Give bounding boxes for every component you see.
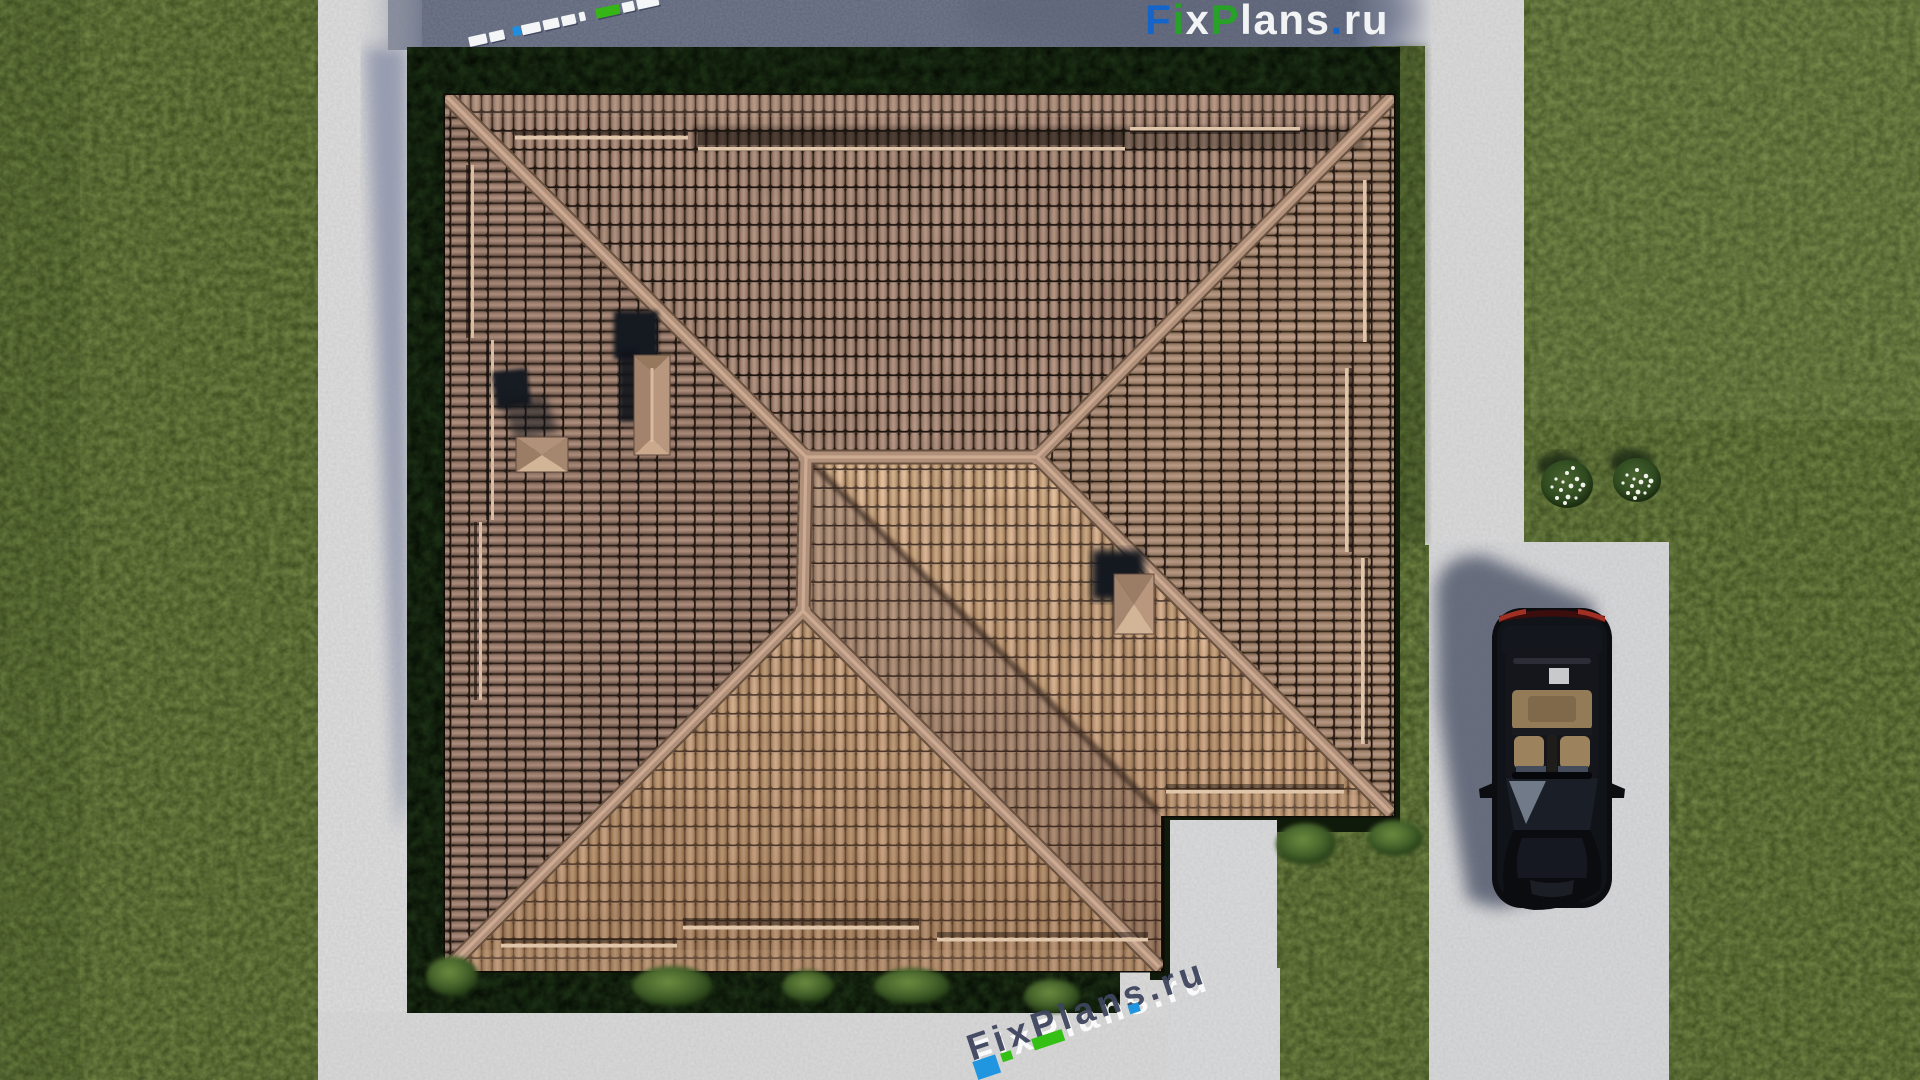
svg-text:FixPlans.ru: FixPlans.ru: [1145, 0, 1389, 43]
